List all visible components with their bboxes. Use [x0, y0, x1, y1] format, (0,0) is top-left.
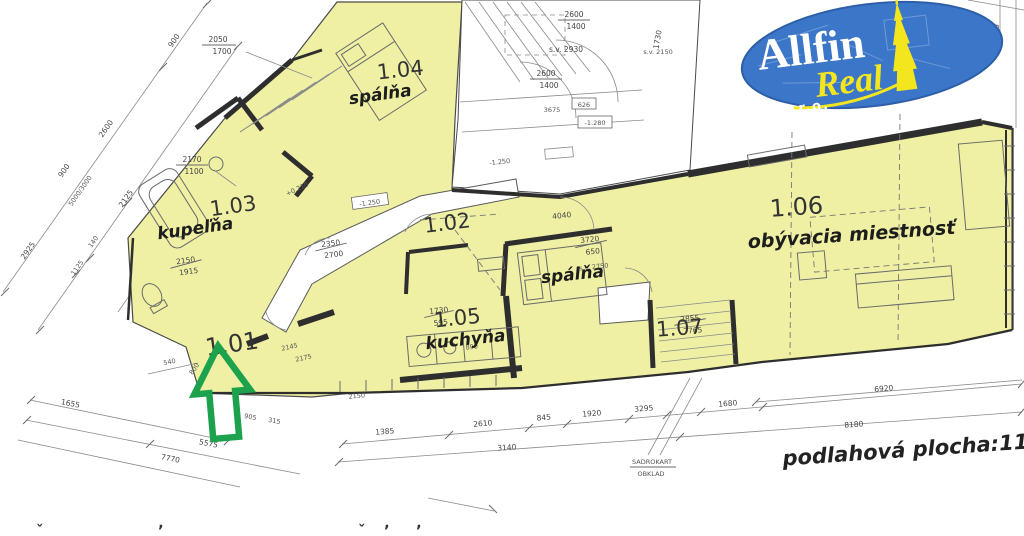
dim-315: 315: [268, 416, 282, 426]
room-number-1-07: 1.07: [655, 314, 703, 341]
allfin-real-logo: Allfin Real s.r.o.: [735, 0, 1008, 123]
dim-1680: 1680: [718, 398, 738, 409]
cutoff-caption-glyphs: ˇ ʼ ˇ ʼ ʼ: [36, 522, 422, 536]
dim-2600-1400a-bot: 1400: [566, 22, 585, 31]
dim-2150-balcony: 2150: [348, 391, 365, 401]
room-number-1-06: 1.06: [769, 191, 824, 223]
dim-2600-1400b-bot: 1400: [539, 81, 558, 90]
cutoff-glyph: ʼ: [158, 522, 164, 536]
cutoff-glyph: ʼ: [416, 522, 422, 536]
dim-140: 140: [87, 234, 101, 249]
dim-1700: 1700: [212, 47, 231, 56]
cutoff-glyph: ˇ: [36, 522, 44, 536]
cutoff-glyph: ʼ: [384, 522, 390, 536]
material-note-line2: OBKLAD: [637, 470, 664, 478]
material-note-line1: SADROKART: [632, 458, 672, 466]
dim-900-upper: 900: [166, 32, 182, 49]
dim-1125: 1125: [69, 259, 85, 277]
dim-905: 905: [244, 412, 258, 422]
dim-2125: 2125: [117, 188, 135, 209]
dim-2170: 2170: [182, 155, 201, 164]
dim-1655: 1655: [60, 397, 81, 410]
floor-plan-page: 900 2600 2925 900 5000/3000 2125 140 112…: [0, 0, 1024, 536]
dim-3140: 3140: [497, 442, 517, 452]
dim-2600: 2600: [97, 118, 115, 139]
dim-1385: 1385: [375, 426, 395, 437]
dim-540: 540: [163, 357, 177, 367]
dim-900-lower: 900: [56, 162, 72, 179]
dim-6920: 6920: [874, 383, 894, 394]
dim-626: 626: [578, 101, 590, 109]
dim-sv2930: s.v. 2930: [549, 45, 583, 54]
dim-7770: 7770: [160, 452, 181, 465]
dim-1100: 1100: [184, 167, 203, 176]
room-number-1-04: 1.04: [376, 56, 425, 85]
dim-minus1280: -1.280: [585, 119, 606, 127]
shaft-cutout: [598, 282, 650, 324]
dim-2610: 2610: [473, 418, 493, 429]
cutoff-glyph: ˇ: [358, 522, 366, 536]
dim-3295: 3295: [634, 403, 654, 414]
dim-2925: 2925: [19, 240, 37, 261]
dim-1920: 1920: [582, 408, 602, 419]
dim-8180: 8180: [844, 419, 864, 429]
dim-sv2150: s.v. 2150: [643, 48, 672, 56]
dim-2050: 2050: [208, 35, 227, 44]
dim-3675: 3675: [544, 106, 561, 114]
dim-845: 845: [536, 412, 551, 422]
dim-2600-1400a-top: 2600: [564, 10, 583, 19]
dim-5000-3000: 5000/3000: [67, 174, 94, 207]
dim-650: 650: [585, 246, 600, 256]
floor-plan-drawing: 900 2600 2925 900 5000/3000 2125 140 112…: [0, 0, 1024, 536]
dim-2600-1400b-top: 2600: [536, 69, 555, 78]
floor-area-note: podlahová plocha:114 m2: [781, 425, 1024, 470]
